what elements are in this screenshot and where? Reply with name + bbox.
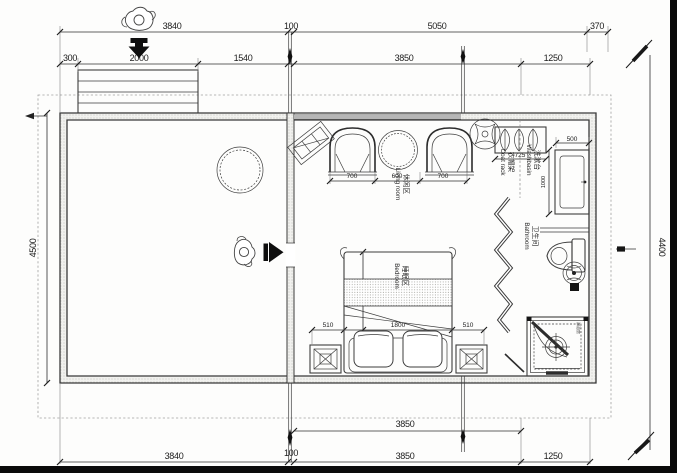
dim-basin-500: 500 [567,136,578,143]
dim-bottom-3850: 3850 [396,451,415,461]
left-room [217,147,284,267]
sheet-border-bottom [0,466,677,473]
deck-outline [38,95,611,418]
folding-partition [496,198,511,332]
nightstand-right [456,345,487,373]
person-icon-entrance [122,7,155,30]
bedroom: 睡眠区 Bedroom [310,248,487,373]
pillow-left [354,331,393,367]
grid-post-right [461,46,466,452]
dim-top-1250: 1250 [544,53,563,63]
round-table [217,147,263,193]
floor-drain [563,262,585,284]
dim-top-300: 300 [63,53,77,63]
coat-rack-label-zh: 衣帽架 [507,152,516,173]
living-label-en: Living room [394,168,401,201]
dimension-text: 3840 100 5050 370 300 2000 1540 3850 125… [28,21,667,461]
right-dim-slash-top [626,40,652,68]
dim-top-1540: 1540 [234,53,253,63]
armchair-right [425,128,474,175]
bathroom-label: 卫生间 Bathroom [523,222,540,249]
shower-cabin: 淋浴房 [527,317,588,376]
living-label-zh: 休闲区 [402,174,411,195]
entrance-steps [78,70,198,113]
dim-right-4400: 4400 [657,238,667,257]
living-room-label: 休闲区 Living room [394,168,411,201]
corner-cabinet [288,121,335,164]
dim-bed-510-left: 510 [323,322,334,329]
washbasin-label-en: Washbasin [525,145,532,176]
tea-table [379,131,418,170]
dim-top-5050: 5050 [428,21,447,31]
interior-arrow-right [264,242,284,263]
coat-rack-label-en: Coat rack [499,149,506,177]
shower-label-zh: 淋浴房 [576,322,582,334]
dim-top-100: 100 [284,21,298,31]
interior-door-opening [286,243,295,267]
armchair-left [328,128,377,175]
dim-basin-1000: 1000 [541,176,547,188]
washbasin-fixture: 洗漱台 Washbasin [525,145,589,214]
dim-left-4500: 4500 [28,238,38,257]
living-room-window [294,114,461,119]
dim-bottom-1250: 1250 [544,451,563,461]
grid-marker [461,49,466,64]
dim-bottom-inner-3850: 3850 [396,419,415,429]
grid-marker [288,429,293,446]
dim-bed-510-right: 510 [463,322,474,329]
bedroom-label-zh: 睡眠区 [401,266,409,287]
dim-chair-700: 700 [347,173,358,180]
floor-plan-canvas: 3840 100 5050 370 300 2000 1540 3850 125… [0,0,677,473]
bathroom-label-zh: 卫生间 [531,226,540,247]
dim-bottom-100: 100 [284,448,298,458]
dim-bottom-3840: 3840 [165,451,184,461]
living-room: 休闲区 Living room [288,119,500,200]
bathroom-label-en: Bathroom [523,222,530,249]
sheet-border-right [670,0,677,473]
pillow-right [403,331,442,367]
right-dim-mid-marker [616,246,636,251]
left-leader-arrow [25,113,47,119]
bathroom-fitting [570,283,579,291]
dim-top-3840: 3840 [163,21,182,31]
bathroom-door-leaf [505,354,524,372]
nightstand-left [310,345,341,373]
dim-top-370: 370 [590,21,604,31]
dim-chair-700: 700 [438,173,449,180]
washbasin-label-zh: 洗漱台 [533,150,542,171]
washbasin-label: 洗漱台 Washbasin [525,145,542,176]
dim-top-3850: 3850 [395,53,414,63]
floor-plan-drawing: 3840 100 5050 370 300 2000 1540 3850 125… [0,0,677,473]
person-icon-interior [234,237,255,267]
coat-rack-label: 衣帽架 Coat rack [499,149,516,177]
bedroom-label-en: Bedroom [393,263,400,289]
